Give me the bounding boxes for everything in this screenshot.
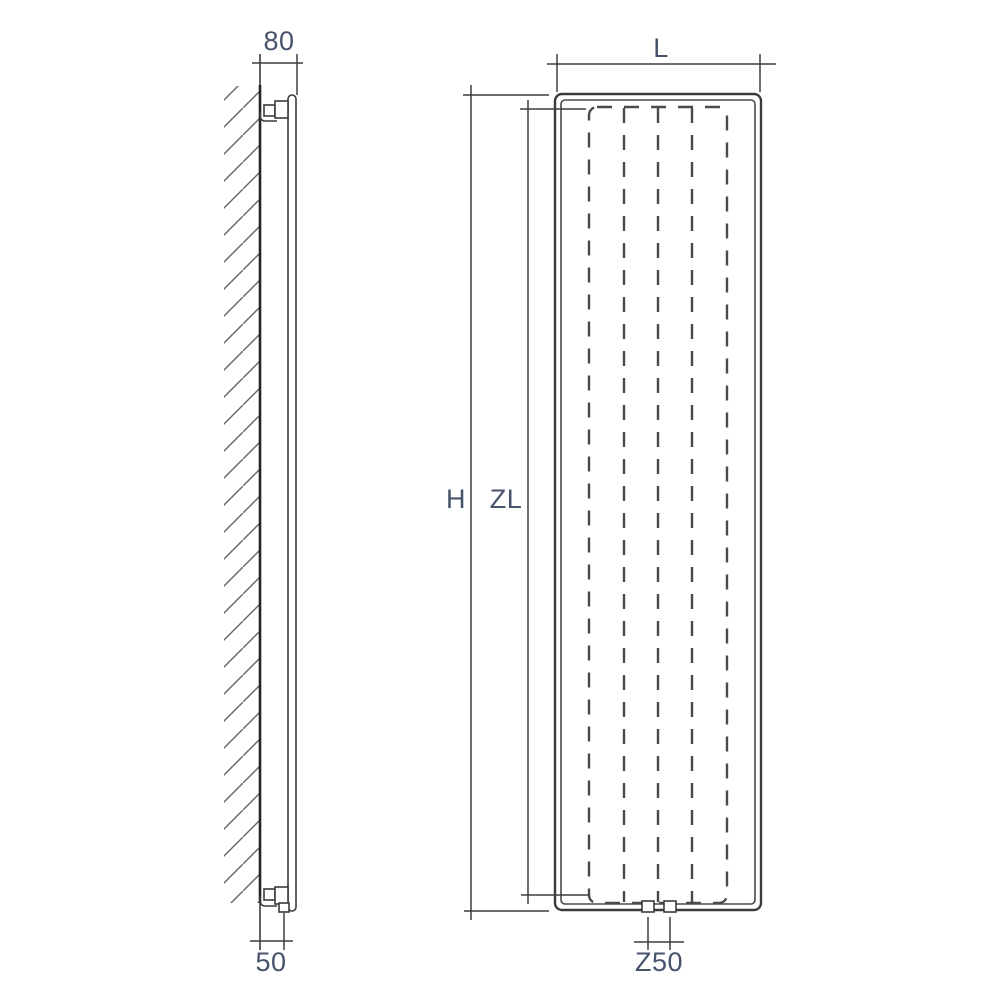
dimension-L: L: [547, 33, 776, 92]
drawing-canvas: 80 50: [0, 0, 1000, 1000]
mounting-bracket-bottom: [260, 887, 289, 912]
mounting-bracket-top: [260, 101, 288, 121]
front-view: L H ZL Z50: [446, 33, 776, 977]
dimension-L-label: L: [653, 33, 669, 63]
pipe-connection-left: [642, 901, 654, 912]
bracket-clip-top: [264, 105, 275, 116]
pipe-connection-right: [664, 901, 676, 912]
bracket-clip-bottom: [264, 889, 275, 900]
pipe-connection-side: [279, 903, 289, 912]
bracket-body-bottom: [275, 887, 288, 904]
radiator-technical-drawing: 80 50: [0, 0, 1000, 1000]
dimension-50: 50: [250, 913, 293, 977]
dimension-Z50: Z50: [634, 917, 684, 977]
side-view: 80 50: [224, 26, 303, 977]
bracket-body-top: [275, 101, 288, 118]
radiator-panel-side: [288, 95, 296, 911]
dimension-50-label: 50: [255, 947, 286, 977]
dimension-Z50-label: Z50: [635, 947, 683, 977]
dimension-H-label: H: [446, 484, 466, 514]
dimension-80-label: 80: [263, 26, 294, 56]
dimension-ZL-label: ZL: [490, 484, 523, 514]
wall-hatching: [224, 86, 260, 903]
